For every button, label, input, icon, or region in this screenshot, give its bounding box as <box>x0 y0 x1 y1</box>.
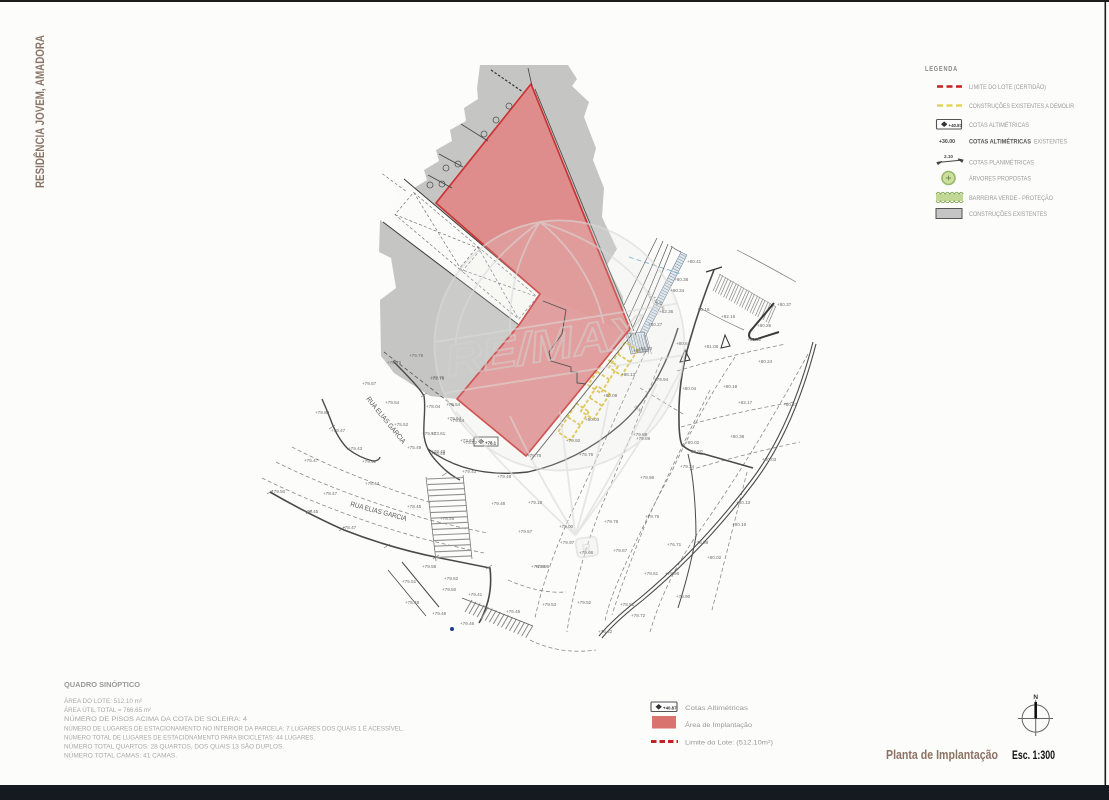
svg-text:+78.45: +78.45 <box>407 504 422 509</box>
svg-text:+79.66: +79.66 <box>579 550 594 555</box>
svg-text:Área de Implantação: Área de Implantação <box>685 720 752 729</box>
svg-text:+79.98: +79.98 <box>665 571 680 576</box>
svg-text:80.16: 80.16 <box>698 307 710 312</box>
svg-text:+80.37: +80.37 <box>777 302 792 307</box>
svg-text:ÁREA DO LOTE: 512.10 m²: ÁREA DO LOTE: 512.10 m² <box>64 698 142 705</box>
svg-text:+79.50: +79.50 <box>271 489 286 494</box>
svg-text:+79.46: +79.46 <box>460 621 475 626</box>
svg-text:+79.57: +79.57 <box>362 381 377 386</box>
svg-text:+79.64: +79.64 <box>450 418 465 423</box>
svg-text:+80.18: +80.18 <box>723 384 738 389</box>
svg-text:+80.34: +80.34 <box>670 288 685 293</box>
svg-text:+79.96: +79.96 <box>535 564 550 569</box>
svg-text:+80.12: +80.12 <box>747 337 762 342</box>
svg-text:+81.08: +81.08 <box>704 344 719 349</box>
svg-text:+79.47: +79.47 <box>331 428 346 433</box>
svg-text:+80.27: +80.27 <box>648 322 663 327</box>
svg-text:+78.47: +78.47 <box>323 491 338 496</box>
svg-text:CONSTRUÇÕES EXISTENTES A DEMOL: CONSTRUÇÕES EXISTENTES A DEMOLIR <box>969 103 1074 110</box>
svg-text:NÚMERO TOTAL CAMAS: 41 CAMAS.: NÚMERO TOTAL CAMAS: 41 CAMAS. <box>64 753 177 760</box>
svg-text:+79.88: +79.88 <box>633 432 648 437</box>
svg-text:+73.61: +73.61 <box>431 431 446 436</box>
svg-text:+76.48: +76.48 <box>431 451 446 456</box>
svg-text:+79.97: +79.97 <box>560 540 575 545</box>
svg-text:+76.71: +76.71 <box>667 542 682 547</box>
svg-text:2.10: 2.10 <box>944 154 953 159</box>
svg-text:Cotas Altimétricas: Cotas Altimétricas <box>685 705 749 712</box>
svg-text:+80.38: +80.38 <box>730 434 745 439</box>
svg-text:+80.03: +80.03 <box>585 417 600 422</box>
svg-text:+79.54: +79.54 <box>385 400 400 405</box>
svg-text:+80.41: +80.41 <box>687 259 702 264</box>
svg-text:+80.24: +80.24 <box>758 359 773 364</box>
svg-text:+79.45: +79.45 <box>304 509 319 514</box>
svg-text:+79.18: +79.18 <box>528 500 543 505</box>
svg-text:+80.16: +80.16 <box>732 522 747 527</box>
svg-text:+75.51: +75.51 <box>402 579 417 584</box>
svg-text:+82.36: +82.36 <box>659 309 674 314</box>
svg-text:Esc. 1:300: Esc. 1:300 <box>1012 750 1055 762</box>
svg-text:+79.94: +79.94 <box>654 377 669 382</box>
svg-text:+80.26: +80.26 <box>757 323 772 328</box>
svg-text:COTAS ALTIMÉTRICAS: COTAS ALTIMÉTRICAS <box>969 122 1029 129</box>
svg-text:NÚMERO DE LUGARES DE ESTACIONA: NÚMERO DE LUGARES DE ESTACIONAMENTO NO I… <box>64 725 404 732</box>
svg-text:+78.51: +78.51 <box>620 602 635 607</box>
svg-text:COTAS ALTIMÉTRICAS: COTAS ALTIMÉTRICAS <box>969 138 1031 146</box>
svg-text:+79.90: +79.90 <box>676 594 691 599</box>
svg-text:+79.48: +79.48 <box>497 474 512 479</box>
svg-text:+79.00: +79.00 <box>559 524 574 529</box>
svg-text:+79.54: +79.54 <box>446 402 461 407</box>
svg-text:+78.61: +78.61 <box>644 571 659 576</box>
svg-text:+79.79: +79.79 <box>645 514 660 519</box>
svg-text:+75.76: +75.76 <box>579 452 594 457</box>
svg-text:+79.48: +79.48 <box>491 501 506 506</box>
svg-text:80.50: 80.50 <box>691 449 703 454</box>
svg-text:Planta de Implantação: Planta de Implantação <box>886 748 998 762</box>
svg-text:+79.92: +79.92 <box>566 438 581 443</box>
svg-text:+86.13: +86.13 <box>621 372 636 377</box>
svg-text:+30.00: +30.00 <box>939 139 955 145</box>
svg-text:BARREIRA VERDE - PROTEÇÃO: BARREIRA VERDE - PROTEÇÃO <box>969 195 1053 202</box>
svg-text:+78.76: +78.76 <box>387 360 402 365</box>
svg-text:+76.42: +76.42 <box>598 629 613 634</box>
svg-text:+80.08: +80.08 <box>603 393 618 398</box>
svg-text:NÚMERO DE PISOS ACIMA DA COTA: NÚMERO DE PISOS ACIMA DA COTA DE SOLEIRA… <box>64 716 248 723</box>
svg-text:+79.58: +79.58 <box>422 564 437 569</box>
svg-text:+79.78: +79.78 <box>604 519 619 524</box>
svg-text:+80.02: +80.02 <box>707 555 722 560</box>
svg-text:+78.47: +78.47 <box>342 525 357 530</box>
svg-text:+80.61: +80.61 <box>676 341 691 346</box>
svg-text:LIMITE DO LOTE (CERTIDÃO): LIMITE DO LOTE (CERTIDÃO) <box>969 84 1046 91</box>
svg-text:QUADRO SINÓPTICO: QUADRO SINÓPTICO <box>64 680 140 689</box>
svg-text:NÚMERO TOTAL QUARTOS: 28 QUART: NÚMERO TOTAL QUARTOS: 28 QUARTOS, DOS QU… <box>64 744 284 751</box>
svg-text:+82.17: +82.17 <box>738 400 753 405</box>
svg-text:N: N <box>1033 694 1038 701</box>
svg-text:+76.99: +76.99 <box>694 540 709 545</box>
svg-text:+78.46: +78.46 <box>440 516 455 521</box>
svg-text:+75.52: +75.52 <box>394 422 409 427</box>
svg-text:NÚMERO TOTAL DE LUGARES DE EST: NÚMERO TOTAL DE LUGARES DE ESTACIONAMENT… <box>64 734 315 741</box>
svg-text:+78.72: +78.72 <box>631 613 646 618</box>
svg-text:+79.42: +79.42 <box>362 459 377 464</box>
svg-text:+78.96: +78.96 <box>640 475 655 480</box>
svg-text:+78.04: +78.04 <box>426 404 441 409</box>
svg-text:+75.47: +75.47 <box>304 458 319 463</box>
svg-text:+80.04: +80.04 <box>682 386 697 391</box>
svg-text:+75.49: +75.49 <box>407 445 422 450</box>
svg-text:+40.87: +40.87 <box>663 705 677 710</box>
svg-text:+76.45: +76.45 <box>506 609 521 614</box>
svg-text:CONSTRUÇÕES EXISTENTES: CONSTRUÇÕES EXISTENTES <box>969 211 1047 218</box>
svg-text:+79.52: +79.52 <box>444 576 459 581</box>
svg-text:+79.46: +79.46 <box>432 611 447 616</box>
svg-text:+79.78: +79.78 <box>409 353 424 358</box>
svg-text:Limite do Lote: (512.10m²): Limite do Lote: (512.10m²) <box>685 740 773 747</box>
svg-text:+78.44: +78.44 <box>365 481 380 486</box>
svg-text:+79.80: +79.80 <box>315 410 330 415</box>
svg-text:+79.53: +79.53 <box>542 602 557 607</box>
svg-text:+79.43: +79.43 <box>348 446 363 451</box>
svg-text:ÁREA ÚTIL TOTAL = 766.65 m²: ÁREA ÚTIL TOTAL = 766.65 m² <box>64 707 151 714</box>
svg-text:+75.48: +75.48 <box>405 600 420 605</box>
svg-text:COTAS PLANIMÉTRICAS: COTAS PLANIMÉTRICAS <box>969 160 1034 167</box>
svg-text:+82.16: +82.16 <box>721 314 736 319</box>
svg-text:+75.78: +75.78 <box>527 453 542 458</box>
svg-text:+80.22: +80.22 <box>783 402 798 407</box>
svg-text:+88.20: +88.20 <box>638 346 653 351</box>
svg-text:+79.43: +79.43 <box>462 469 477 474</box>
svg-text:+79.41: +79.41 <box>468 592 483 597</box>
svg-text:+79.52: +79.52 <box>577 600 592 605</box>
svg-text:EXISTENTES: EXISTENTES <box>1034 139 1067 146</box>
svg-text:+40.87: +40.87 <box>949 123 963 128</box>
svg-text:+73.62: +73.62 <box>463 440 478 445</box>
svg-text:+72.79: +72.79 <box>430 376 445 381</box>
svg-text:+79.57: +79.57 <box>518 529 533 534</box>
svg-text:LEGENDA: LEGENDA <box>925 66 958 73</box>
svg-text:+80.13: +80.13 <box>736 500 751 505</box>
svg-text:RESIDÊNCIA JOVEM, AMADORA: RESIDÊNCIA JOVEM, AMADORA <box>32 35 47 188</box>
svg-text:+80.38: +80.38 <box>674 277 689 282</box>
svg-text:ÁRVORES PROPOSTAS: ÁRVORES PROPOSTAS <box>969 176 1031 183</box>
svg-text:+80.03: +80.03 <box>762 457 777 462</box>
svg-text:+79.67: +79.67 <box>613 548 628 553</box>
svg-text:+80.02: +80.02 <box>685 440 700 445</box>
svg-text:+79.34: +79.34 <box>680 464 695 469</box>
svg-text:+79.50: +79.50 <box>442 587 457 592</box>
